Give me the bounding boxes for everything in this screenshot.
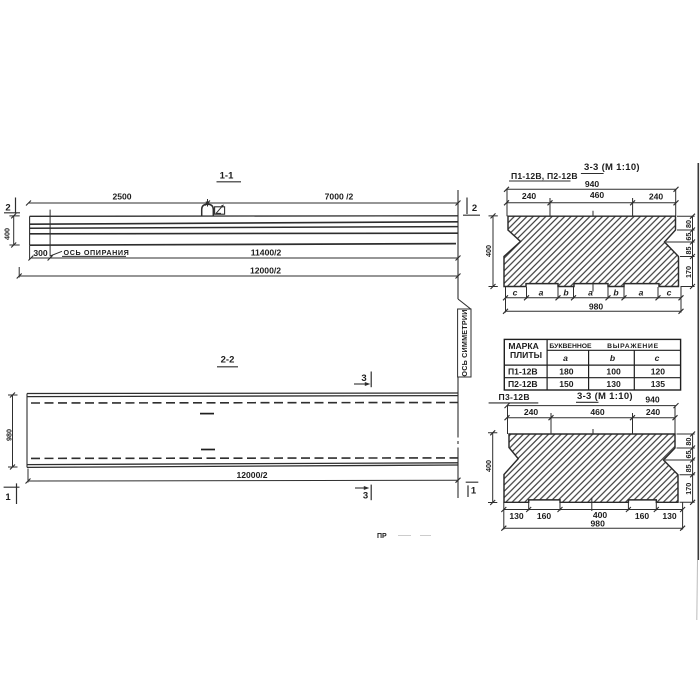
svg-text:240: 240 [522,191,537,201]
svg-text:240: 240 [646,407,661,417]
svg-text:c: c [513,288,518,298]
svg-text:130: 130 [662,511,677,521]
svg-text:400: 400 [484,245,493,257]
svg-text:П2-12В: П2-12В [508,379,538,389]
svg-text:130: 130 [606,379,621,389]
svg-text:400: 400 [484,460,493,472]
svg-text:150: 150 [559,379,574,389]
svg-text:П1-12В: П1-12В [508,367,538,377]
svg-text:b: b [563,288,568,298]
svg-text:460: 460 [590,407,605,417]
svg-text:170: 170 [684,266,693,278]
svg-text:БУКВЕННОЕ: БУКВЕННОЕ [549,343,592,350]
svg-text:3: 3 [361,373,366,384]
svg-text:180: 180 [559,367,574,377]
svg-text:135: 135 [651,379,666,389]
svg-text:12000/2: 12000/2 [236,470,267,480]
svg-text:2: 2 [5,203,10,214]
svg-text:ОСЬ СИММЕТРИИ: ОСЬ СИММЕТРИИ [460,309,469,376]
svg-text:3: 3 [363,491,368,502]
svg-text:a: a [588,288,593,298]
svg-text:65: 65 [684,451,693,459]
svg-text:940: 940 [585,179,600,189]
svg-text:65: 65 [684,233,693,241]
svg-text:980: 980 [5,429,14,441]
svg-text:160: 160 [537,511,552,521]
svg-text:ОСЬ ОПИРАНИЯ: ОСЬ ОПИРАНИЯ [64,248,130,257]
svg-text:П1-12В, П2-12В: П1-12В, П2-12В [511,171,578,181]
svg-text:240: 240 [649,191,664,201]
svg-text:ПЛИТЫ: ПЛИТЫ [510,350,542,360]
svg-text:300: 300 [33,248,48,258]
svg-text:ПР: ПР [377,533,387,540]
svg-text:80: 80 [684,220,693,228]
svg-text:c: c [655,353,660,363]
svg-text:160: 160 [635,511,650,521]
svg-text:100: 100 [606,367,621,377]
svg-text:980: 980 [591,519,606,529]
svg-text:240: 240 [524,407,539,417]
svg-text:7000 /2: 7000 /2 [325,192,354,202]
svg-text:400: 400 [3,228,12,240]
svg-text:3-3 (М 1:10): 3-3 (М 1:10) [584,162,640,173]
svg-text:120: 120 [651,367,666,377]
svg-text:980: 980 [589,302,604,312]
svg-text:1: 1 [471,486,477,497]
svg-text:3-3 (М 1:10): 3-3 (М 1:10) [577,391,633,402]
svg-text:1-1: 1-1 [220,171,234,182]
svg-text:a: a [539,288,544,298]
svg-text:c: c [667,288,672,298]
svg-text:460: 460 [590,190,605,200]
svg-text:ВЫРАЖЕНИЕ: ВЫРАЖЕНИЕ [607,343,659,350]
svg-text:130: 130 [509,511,524,521]
svg-text:b: b [610,353,615,363]
svg-text:940: 940 [645,394,660,404]
svg-text:170: 170 [684,483,693,495]
svg-text:a: a [639,288,644,298]
svg-text:12000/2: 12000/2 [250,266,281,276]
svg-text:b: b [613,288,618,298]
svg-text:1: 1 [5,492,11,503]
svg-text:a: a [563,353,568,363]
svg-text:П3-12В: П3-12В [499,392,530,402]
svg-text:85: 85 [684,464,693,472]
svg-text:11400/2: 11400/2 [251,248,282,258]
svg-text:85: 85 [684,247,693,255]
svg-text:80: 80 [684,438,693,446]
svg-text:2500: 2500 [112,192,131,202]
svg-text:2-2: 2-2 [221,355,235,366]
svg-text:2: 2 [472,203,477,214]
